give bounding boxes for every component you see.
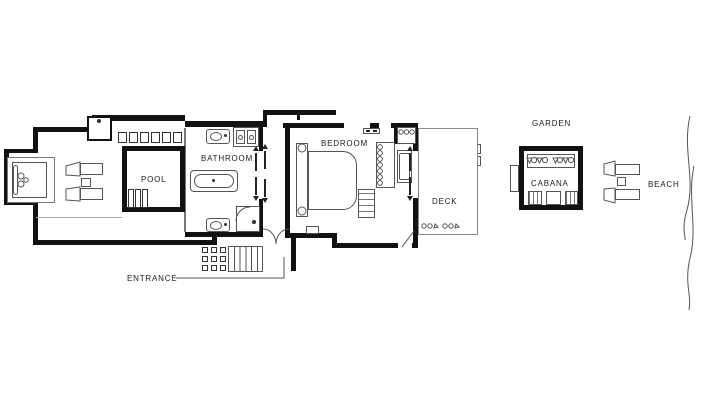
ac-unit-vent [366, 130, 370, 132]
cabana-stool-right [565, 191, 578, 205]
courtyard-top-wall-left [33, 127, 95, 132]
outdoor-shower-head-icon [97, 119, 101, 123]
deck-door-gap [398, 243, 412, 248]
cabana-sofa [527, 154, 575, 168]
bathroom-sliding-door-panel-1 [255, 153, 257, 171]
pool-step-3 [142, 189, 148, 208]
bed-headboard [296, 143, 308, 217]
paver-3 [140, 132, 149, 143]
bathtub-drain [212, 179, 215, 182]
beach-lounger-2-backrest [604, 188, 615, 203]
bedroom-window-1 [344, 123, 370, 128]
floor-plan: POOL BATHROOM BEDROOM DECK GARDEN CABANA… [0, 0, 704, 420]
toilet-top-bowl [210, 132, 222, 141]
courtyard-bottom-wall [33, 240, 217, 245]
courtyard-side-table [81, 178, 91, 187]
shower-enclosure [236, 206, 260, 232]
courtyard-left-wall-lower [33, 201, 38, 245]
cabana-side-step [510, 165, 519, 192]
pool-step-1 [128, 189, 134, 208]
sliding-arrow-down-icon [262, 198, 268, 203]
bedroom-doorstep [306, 226, 319, 234]
entrance-paver [202, 247, 208, 253]
vestibule-divider-tick [297, 110, 300, 120]
paver-4 [151, 132, 160, 143]
entrance-stairs [228, 246, 263, 272]
entrance-paver [220, 256, 226, 262]
pool-label: POOL [141, 175, 166, 184]
paver-6 [173, 132, 182, 143]
toilet-bottom-bowl [210, 221, 222, 230]
entrance-paver [202, 256, 208, 262]
ac-unit-vent [373, 130, 377, 132]
entrance-paver [220, 265, 226, 271]
paver-1 [118, 132, 127, 143]
bedroom-left-wall [285, 123, 290, 233]
entrance-paver [211, 265, 217, 271]
closet-vanity [397, 127, 416, 144]
deck-sliding-door-panel-2 [409, 177, 411, 195]
entrance-paver [220, 247, 226, 253]
deck-label: DECK [432, 197, 457, 206]
entrance-label: ENTRANCE [127, 274, 177, 283]
bathroom-sliding-door-panel-2 [255, 177, 257, 195]
entrance-paver [202, 265, 208, 271]
shower-head-icon [252, 220, 256, 224]
cabana-label: CABANA [531, 179, 569, 188]
daybed-nook-top-wall [4, 149, 38, 153]
beach-lounger-2-seat [615, 189, 640, 200]
sliding-arrow-down-icon [407, 196, 413, 201]
bathroom-label: BATHROOM [201, 154, 253, 163]
shoreline-wave-2 [688, 166, 694, 310]
vanity-drain-right [249, 135, 254, 140]
sliding-arrow-up-icon [253, 146, 259, 151]
courtyard-lounger-1-backrest [66, 162, 80, 176]
bathroom-bottom-wall [185, 232, 263, 237]
vestibule-parapet-riser [263, 110, 267, 127]
sliding-arrow-up-icon [407, 146, 413, 151]
courtyard-lounger-1-seat [80, 163, 103, 175]
beach-label: BEACH [648, 180, 680, 189]
bedroom-label: BEDROOM [321, 139, 368, 148]
toilet-top-button [224, 134, 227, 137]
deck-outline [418, 128, 478, 235]
bathroom-sliding-door-panel-3 [264, 151, 266, 169]
bathroom-sliding-door-panel-4 [264, 179, 266, 197]
cabana-stool-middle [546, 191, 561, 205]
wardrobe-hanging [376, 142, 395, 188]
beach-side-table [617, 177, 626, 186]
courtyard-terrace-edge [36, 217, 122, 218]
plan-overlay [0, 0, 704, 420]
sliding-arrow-down-icon [253, 196, 259, 201]
courtyard-lounger-2-backrest [66, 187, 80, 201]
daybed-bolster [13, 165, 18, 195]
bedroom-window-2 [379, 123, 391, 128]
sliding-arrow-up-icon [262, 144, 268, 149]
porch-right-wall [291, 237, 296, 271]
bed-mattress [308, 151, 357, 210]
paver-5 [162, 132, 171, 143]
entrance-paver [211, 247, 217, 253]
shoreline-wave-1 [684, 116, 690, 240]
entrance-door-arc-left [263, 229, 276, 244]
vanity-drain-left [238, 135, 243, 140]
beach-lounger-1-seat [615, 164, 640, 175]
entrance-paver [211, 256, 217, 262]
cabana-stool-left [528, 191, 542, 205]
paver-2 [129, 132, 138, 143]
bed-foot-bench [358, 189, 375, 218]
garden-label: GARDEN [532, 119, 571, 128]
pool-step-2 [135, 189, 141, 208]
toilet-bottom-button [224, 223, 227, 226]
courtyard-lounger-2-seat [80, 188, 103, 200]
beach-lounger-1-backrest [604, 161, 615, 176]
deck-sliding-door-panel-1 [409, 153, 411, 171]
